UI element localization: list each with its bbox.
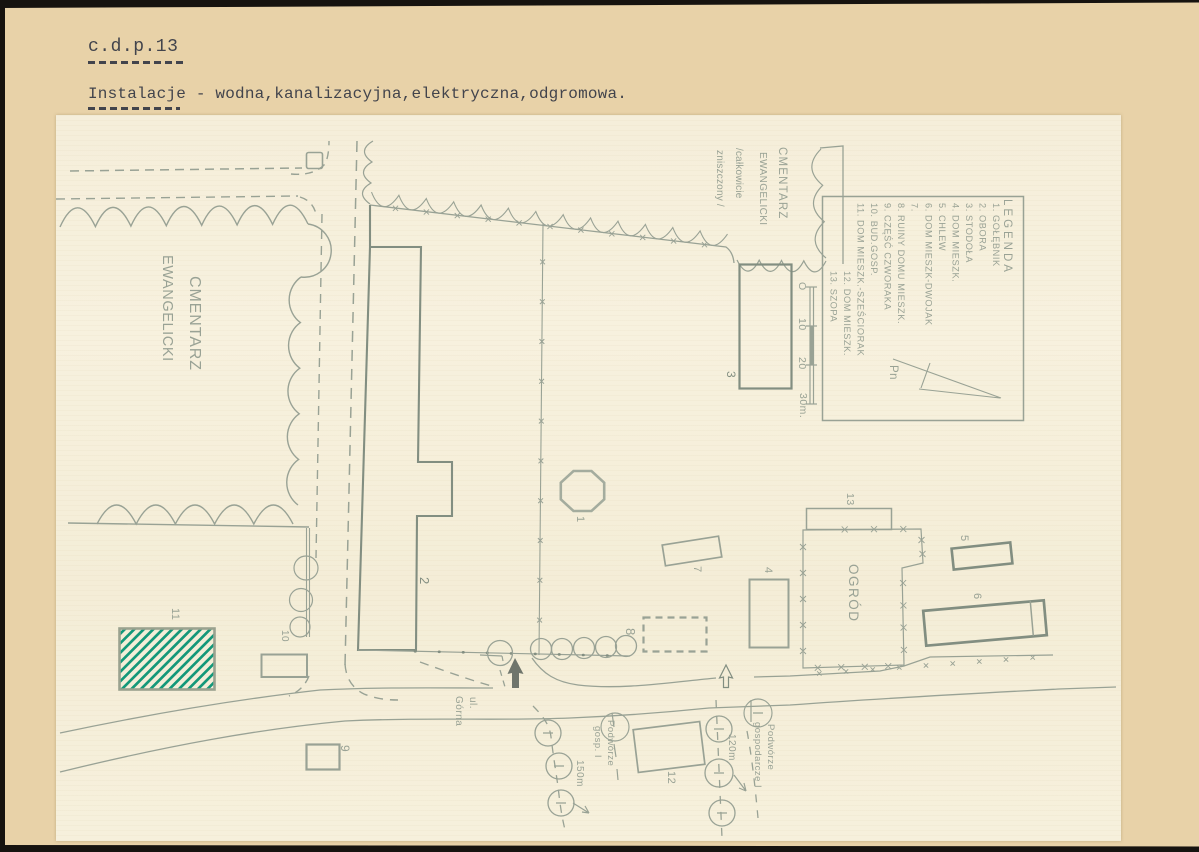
svg-text:20: 20 bbox=[796, 357, 808, 370]
svg-text:Pn: Pn bbox=[887, 365, 899, 380]
svg-text:EWANGELICKI: EWANGELICKI bbox=[757, 152, 768, 226]
svg-text:2. OBORA: 2. OBORA bbox=[977, 203, 987, 251]
svg-text:5. CHLEW: 5. CHLEW bbox=[937, 203, 947, 251]
svg-text:CMENTARZ: CMENTARZ bbox=[776, 147, 788, 220]
svg-text:13: 13 bbox=[844, 493, 856, 506]
svg-text:6: 6 bbox=[971, 593, 983, 600]
svg-text:gosp. I: gosp. I bbox=[592, 726, 603, 758]
svg-text:O: O bbox=[796, 282, 808, 291]
svg-text:13. SZOPA: 13. SZOPA bbox=[828, 271, 838, 322]
svg-text:3. STODOŁA: 3. STODOŁA bbox=[964, 203, 974, 263]
svg-text:Górna: Górna bbox=[453, 696, 464, 726]
svg-text:30m.: 30m. bbox=[797, 393, 809, 418]
svg-text:Podwórze: Podwórze bbox=[765, 724, 776, 770]
svg-text:8. RUINY DOMU MIESZK.: 8. RUINY DOMU MIESZK. bbox=[896, 203, 906, 324]
svg-text:8: 8 bbox=[623, 628, 638, 636]
svg-text:Podwórze: Podwórze bbox=[605, 720, 616, 766]
svg-text:/całkowicie: /całkowicie bbox=[733, 148, 744, 199]
svg-text:5: 5 bbox=[958, 535, 970, 542]
svg-text:4. DOM MIESZK.: 4. DOM MIESZK. bbox=[950, 203, 960, 282]
svg-text:7.: 7. bbox=[910, 203, 920, 212]
svg-text:11: 11 bbox=[169, 608, 181, 620]
svg-text:EWANGELICKI: EWANGELICKI bbox=[159, 255, 175, 362]
svg-text:1: 1 bbox=[574, 516, 586, 523]
svg-text:9: 9 bbox=[338, 745, 352, 752]
svg-text:10: 10 bbox=[796, 318, 808, 331]
svg-text:LEGENDA: LEGENDA bbox=[1001, 199, 1013, 275]
svg-text:CMENTARZ: CMENTARZ bbox=[186, 276, 203, 371]
svg-text:9. CZĘŚĆ CZWORAKA: 9. CZĘŚĆ CZWORAKA bbox=[883, 203, 894, 310]
svg-text:ul.: ul. bbox=[467, 697, 478, 709]
svg-text:120m: 120m bbox=[726, 734, 737, 761]
svg-text:7: 7 bbox=[691, 566, 703, 573]
svg-text:150m: 150m bbox=[574, 760, 585, 787]
svg-text:OGRÓD: OGRÓD bbox=[846, 564, 861, 623]
svg-text:gospodarcze I: gospodarcze I bbox=[752, 722, 763, 788]
svg-text:10. BUD.GOSP.: 10. BUD.GOSP. bbox=[869, 203, 879, 276]
svg-text:11. DOM MIESZK.-SZEŚCIORAK: 11. DOM MIESZK.-SZEŚCIORAK bbox=[856, 203, 867, 357]
svg-text:3: 3 bbox=[724, 371, 738, 378]
svg-text:1. GOŁĘBNIK: 1. GOŁĘBNIK bbox=[991, 203, 1001, 267]
svg-text:2: 2 bbox=[417, 577, 432, 585]
svg-text:6. DOM MIESZK-DWOJAK: 6. DOM MIESZK-DWOJAK bbox=[923, 203, 933, 326]
svg-text:zniszczony /: zniszczony / bbox=[714, 150, 725, 207]
svg-text:4: 4 bbox=[762, 567, 774, 574]
svg-text:10: 10 bbox=[279, 630, 290, 642]
svg-text:12. DOM MIESZK.: 12. DOM MIESZK. bbox=[842, 271, 852, 356]
svg-text:12: 12 bbox=[665, 771, 677, 784]
